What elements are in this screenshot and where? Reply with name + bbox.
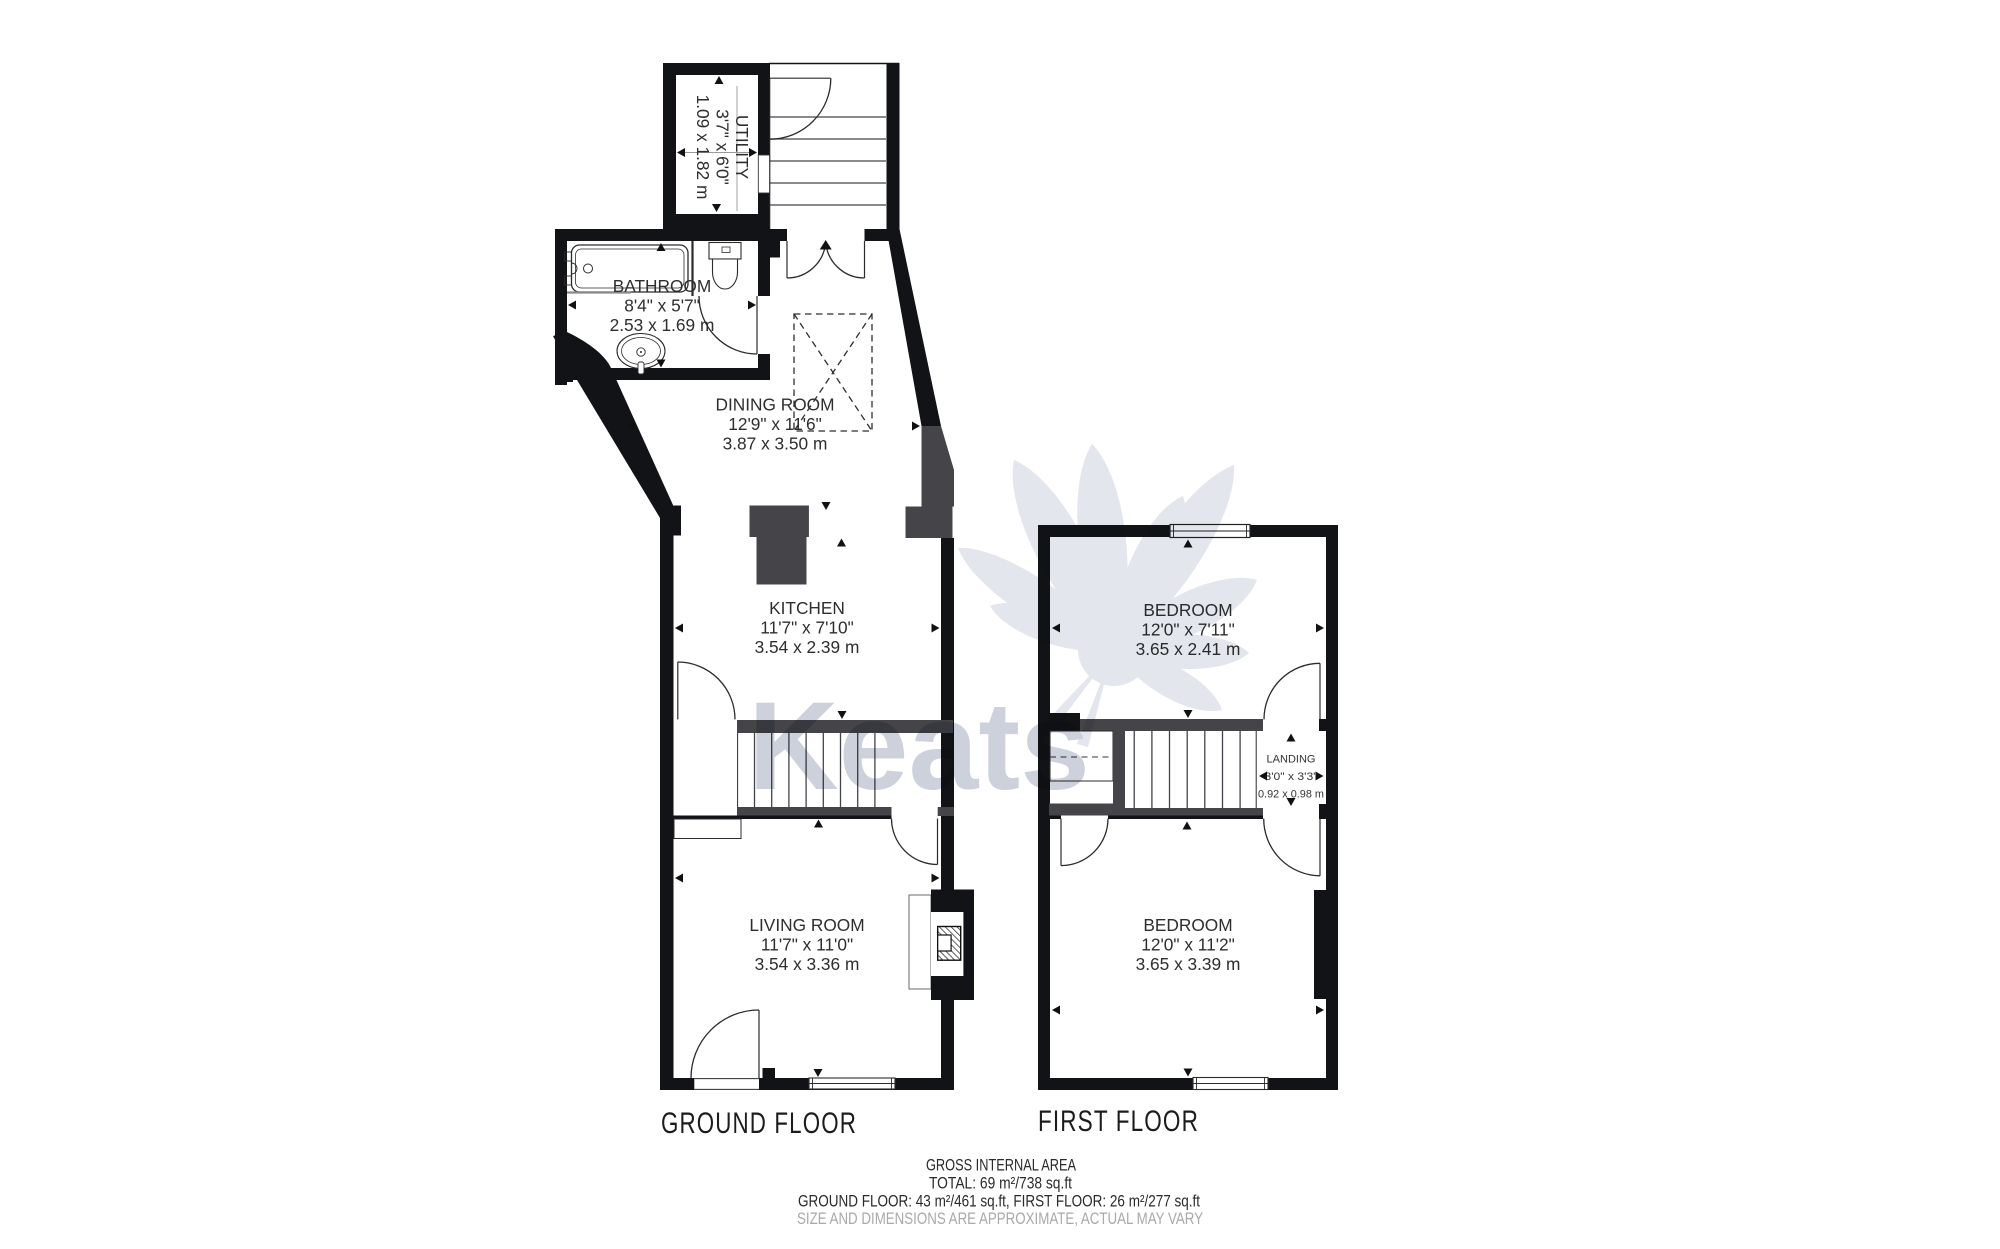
svg-text:DINING ROOM: DINING ROOM	[715, 395, 834, 415]
svg-text:BEDROOM: BEDROOM	[1143, 915, 1232, 935]
svg-text:UTILITY: UTILITY	[732, 115, 752, 180]
svg-text:3.87 x 3.50 m: 3.87 x 3.50 m	[723, 434, 828, 454]
svg-text:GROUND FLOOR: GROUND FLOOR	[661, 1107, 857, 1140]
svg-text:FIRST FLOOR: FIRST FLOOR	[1038, 1105, 1199, 1138]
svg-text:12'0" x 11'2": 12'0" x 11'2"	[1141, 935, 1235, 955]
svg-text:BATHROOM: BATHROOM	[613, 276, 712, 296]
svg-text:SIZE AND DIMENSIONS ARE APPROX: SIZE AND DIMENSIONS ARE APPROXIMATE, ACT…	[797, 1209, 1203, 1228]
svg-text:11'7" x 11'0": 11'7" x 11'0"	[761, 935, 853, 955]
svg-text:2.53 x 1.69 m: 2.53 x 1.69 m	[610, 315, 715, 335]
svg-text:1.09 x 1.82 m: 1.09 x 1.82 m	[693, 95, 713, 200]
svg-text:KITCHEN: KITCHEN	[769, 598, 845, 618]
svg-text:Keats: Keats	[748, 677, 1090, 816]
svg-text:TOTAL: 69 m²/738 sq.ft: TOTAL: 69 m²/738 sq.ft	[929, 1174, 1072, 1193]
svg-text:8'4" x 5'7": 8'4" x 5'7"	[624, 296, 700, 316]
svg-text:LIVING ROOM: LIVING ROOM	[749, 915, 864, 935]
svg-text:3.54 x 2.39 m: 3.54 x 2.39 m	[755, 637, 860, 657]
svg-text:11'7" x 7'10": 11'7" x 7'10"	[760, 618, 854, 638]
svg-text:3.54 x 3.36 m: 3.54 x 3.36 m	[755, 954, 860, 974]
svg-text:LANDING: LANDING	[1267, 754, 1316, 766]
svg-text:GROUND FLOOR: 43 m²/461 sq.ft,: GROUND FLOOR: 43 m²/461 sq.ft, FIRST FLO…	[798, 1192, 1200, 1211]
svg-text:3.65 x 3.39 m: 3.65 x 3.39 m	[1136, 954, 1241, 974]
svg-text:GROSS INTERNAL AREA: GROSS INTERNAL AREA	[926, 1156, 1077, 1175]
svg-text:3'0" x 3'3": 3'0" x 3'3"	[1265, 771, 1318, 783]
svg-text:3'7" x 6'0": 3'7" x 6'0"	[713, 109, 733, 185]
svg-text:12'9" x 11'6": 12'9" x 11'6"	[728, 414, 822, 434]
